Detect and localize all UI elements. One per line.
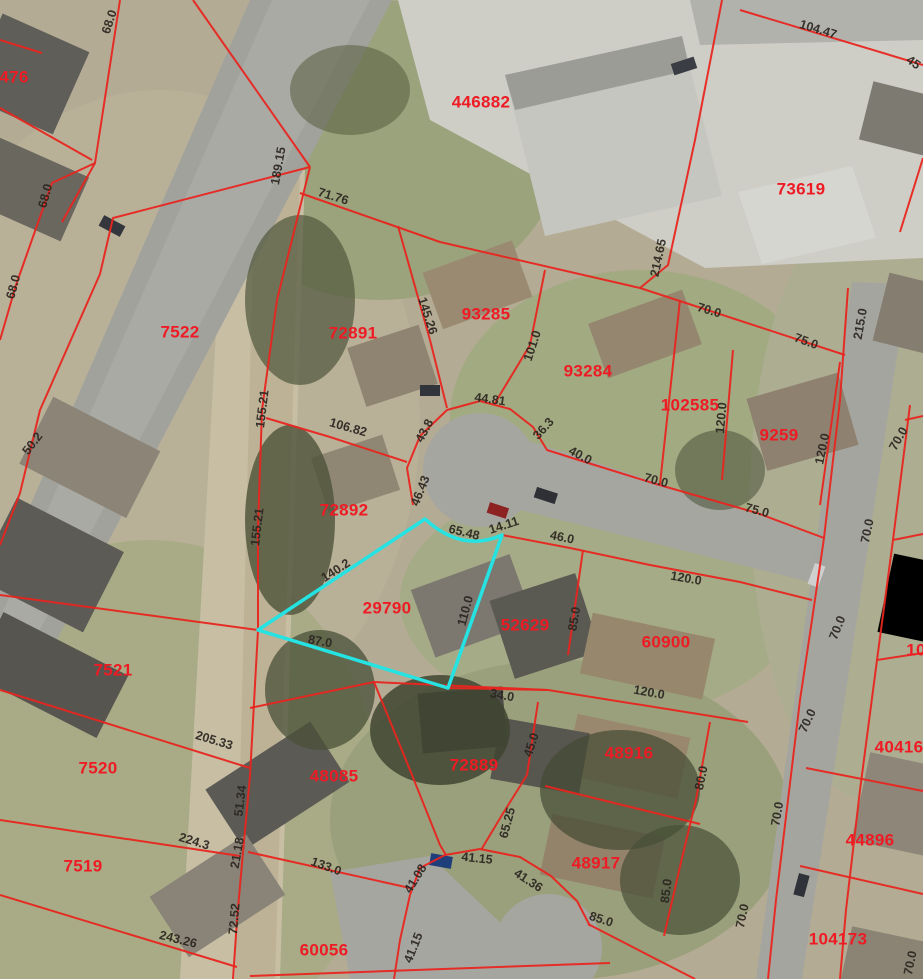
parcel-boundary-line <box>394 895 410 979</box>
dimension-label: 80.0 <box>692 764 711 791</box>
parcel-id-label[interactable]: 446882 <box>452 92 511 111</box>
parcel-boundary-line <box>250 682 374 708</box>
dimension-label: 45 <box>904 53 923 72</box>
dimension-label: 14.11 <box>487 514 520 537</box>
parcel-boundary-line <box>0 895 237 967</box>
parcel-id-label[interactable]: 476 <box>0 67 29 86</box>
parcel-id-label[interactable]: 104173 <box>809 929 868 948</box>
dimension-label: 155.21 <box>248 507 267 547</box>
dimension-label: 120.0 <box>633 683 666 702</box>
dimension-label: 70.0 <box>733 902 752 929</box>
parcel-id-label[interactable]: 7522 <box>160 322 199 341</box>
parcel-boundary-line <box>0 690 250 768</box>
parcel-boundary-line <box>250 963 610 976</box>
dimension-label: 101.0 <box>521 329 544 363</box>
parcel-id-label[interactable]: 93285 <box>462 304 511 323</box>
dimension-label: 65.25 <box>497 806 519 840</box>
parcel-boundary-line <box>660 300 680 484</box>
dimension-label: 85.0 <box>658 878 675 904</box>
dimension-label: 75.0 <box>792 331 820 352</box>
parcel-id-label[interactable]: 52629 <box>501 615 550 634</box>
dimension-label: 145.26 <box>415 295 440 336</box>
dimension-label: 68.0 <box>99 8 120 36</box>
dimension-label: 85.0 <box>565 606 583 632</box>
dimension-label: 70.0 <box>901 949 920 976</box>
parcel-boundary-line <box>0 595 258 630</box>
parcel-boundary-line <box>840 405 910 979</box>
dimension-label: 214.65 <box>647 238 669 278</box>
parcel-boundary-line <box>806 768 923 791</box>
dimension-label: 243.26 <box>158 928 199 951</box>
parcel-boundary-line <box>410 849 590 926</box>
parcel-id-label[interactable]: 60056 <box>300 940 349 959</box>
parcel-overlay: 68.0104.474568.0189.1571.76214.6568.0145… <box>0 0 923 979</box>
dimension-label: 155.21 <box>253 389 272 429</box>
parcel-id-label[interactable]: 7521 <box>93 660 132 679</box>
parcel-boundary-line <box>300 193 640 288</box>
dimension-label: 215.0 <box>851 307 870 340</box>
dimension-label: 68.0 <box>3 273 23 300</box>
parcel-id-label[interactable]: 48917 <box>572 853 621 872</box>
dimension-label: 36.3 <box>530 415 557 442</box>
parcel-id-label[interactable]: 72889 <box>450 755 499 774</box>
dimension-label: 50.2 <box>19 430 45 458</box>
dimension-label: 106.82 <box>328 415 369 439</box>
dimension-label: 34.0 <box>489 686 515 704</box>
dimension-label: 70.0 <box>643 470 670 490</box>
dimension-label: 41.15 <box>401 931 426 965</box>
dimension-label: 46.43 <box>408 474 433 508</box>
parcel-boundary-line <box>502 535 812 600</box>
parcel-id-label[interactable]: 72891 <box>329 323 378 342</box>
parcel-id-label[interactable]: 48916 <box>605 743 654 762</box>
parcel-id-label[interactable]: 73619 <box>777 179 826 198</box>
parcel-id-label[interactable]: 93284 <box>564 361 613 380</box>
parcel-boundary-line <box>0 167 310 545</box>
parcel-boundary-line <box>588 924 695 979</box>
dimension-label: 21.18 <box>228 836 247 869</box>
parcel-id-label[interactable]: 10 <box>906 640 923 659</box>
dimension-label: 44.81 <box>474 390 507 408</box>
dimension-label: 189.15 <box>268 146 288 186</box>
dimension-label: 205.33 <box>194 728 235 753</box>
dimension-label: 104.47 <box>798 17 839 42</box>
dimension-label: 75.0 <box>744 500 771 520</box>
dimension-label: 120.0 <box>670 569 703 588</box>
map-viewport[interactable]: 68.0104.474568.0189.1571.76214.6568.0145… <box>0 0 923 979</box>
parcel-id-label[interactable]: 48085 <box>310 766 359 785</box>
dimension-label: 41.08 <box>401 862 429 896</box>
parcel-id-label[interactable]: 29790 <box>363 598 412 617</box>
dimension-label: 43.8 <box>412 417 436 445</box>
parcel-id-label[interactable]: 44896 <box>846 830 895 849</box>
parcel-id-label[interactable]: 40416 <box>875 737 923 756</box>
dimension-label: 70.0 <box>696 300 723 321</box>
dimension-label: 72.52 <box>226 903 243 935</box>
dimension-label: 68.0 <box>35 182 55 209</box>
parcel-boundary-line <box>568 550 583 655</box>
parcel-boundary-line <box>193 0 310 167</box>
parcel-boundary-line <box>900 158 923 232</box>
parcel-boundary-line <box>0 40 42 53</box>
parcel-id-label[interactable]: 102585 <box>661 395 720 414</box>
dimension-label: 70.0 <box>826 614 848 642</box>
parcel-id-label[interactable]: 7520 <box>78 758 117 777</box>
parcel-boundary-line <box>893 534 923 540</box>
dimension-label: 70.0 <box>858 517 877 544</box>
dimension-label: 70.0 <box>768 801 786 827</box>
dimension-label: 120.0 <box>812 432 832 466</box>
dimension-label: 41.15 <box>461 850 494 867</box>
dimension-label: 45.0 <box>521 731 542 759</box>
parcel-id-label[interactable]: 72892 <box>320 500 369 519</box>
parcel-boundary-line <box>62 163 95 222</box>
parcel-boundary-line <box>800 866 923 894</box>
dimension-label: 133.0 <box>309 854 343 878</box>
parcel-id-label[interactable]: 9259 <box>759 425 798 444</box>
parcel-boundary-line <box>374 682 446 855</box>
parcel-id-label[interactable]: 7519 <box>63 856 102 875</box>
parcel-boundary-line <box>545 786 700 824</box>
parcel-id-label[interactable]: 60900 <box>642 632 691 651</box>
parcel-boundary-line <box>640 0 722 288</box>
parcel-boundary-line <box>0 108 92 160</box>
